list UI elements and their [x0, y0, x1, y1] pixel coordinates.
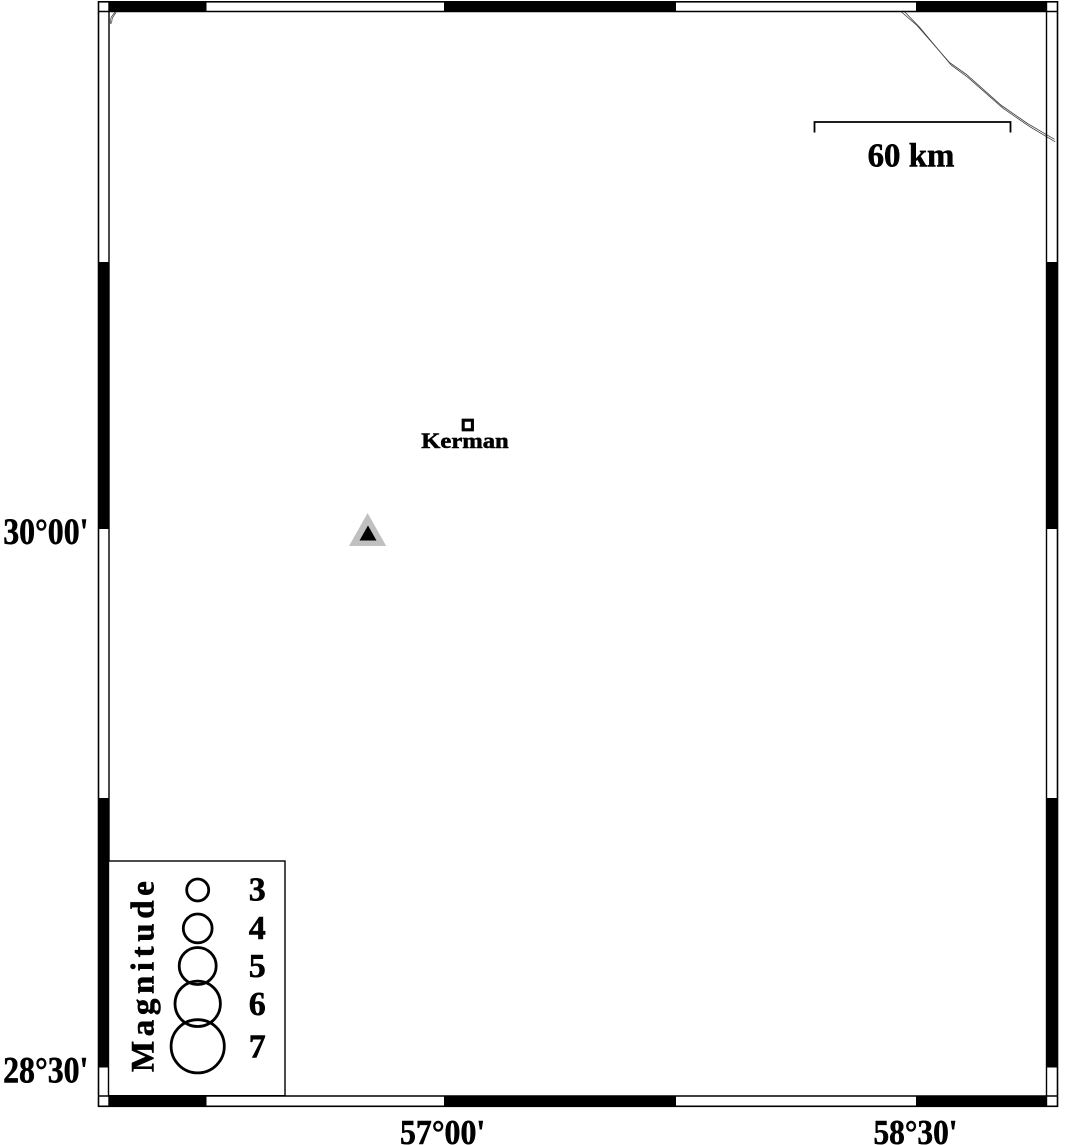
svg-text:7: 7 [249, 1029, 266, 1066]
svg-text:3: 3 [249, 872, 266, 909]
svg-text:4: 4 [249, 910, 266, 947]
svg-text:58°30': 58°30' [874, 1114, 958, 1145]
svg-text:28°30': 28°30' [3, 1050, 88, 1091]
svg-text:30°00': 30°00' [3, 512, 88, 553]
svg-text:Kerman: Kerman [421, 428, 509, 453]
svg-text:6: 6 [249, 986, 266, 1023]
svg-text:57°00': 57°00' [400, 1114, 485, 1145]
svg-text:60 km: 60 km [868, 137, 955, 174]
svg-text:Magnitude: Magnitude [126, 877, 162, 1072]
svg-text:5: 5 [249, 948, 266, 985]
